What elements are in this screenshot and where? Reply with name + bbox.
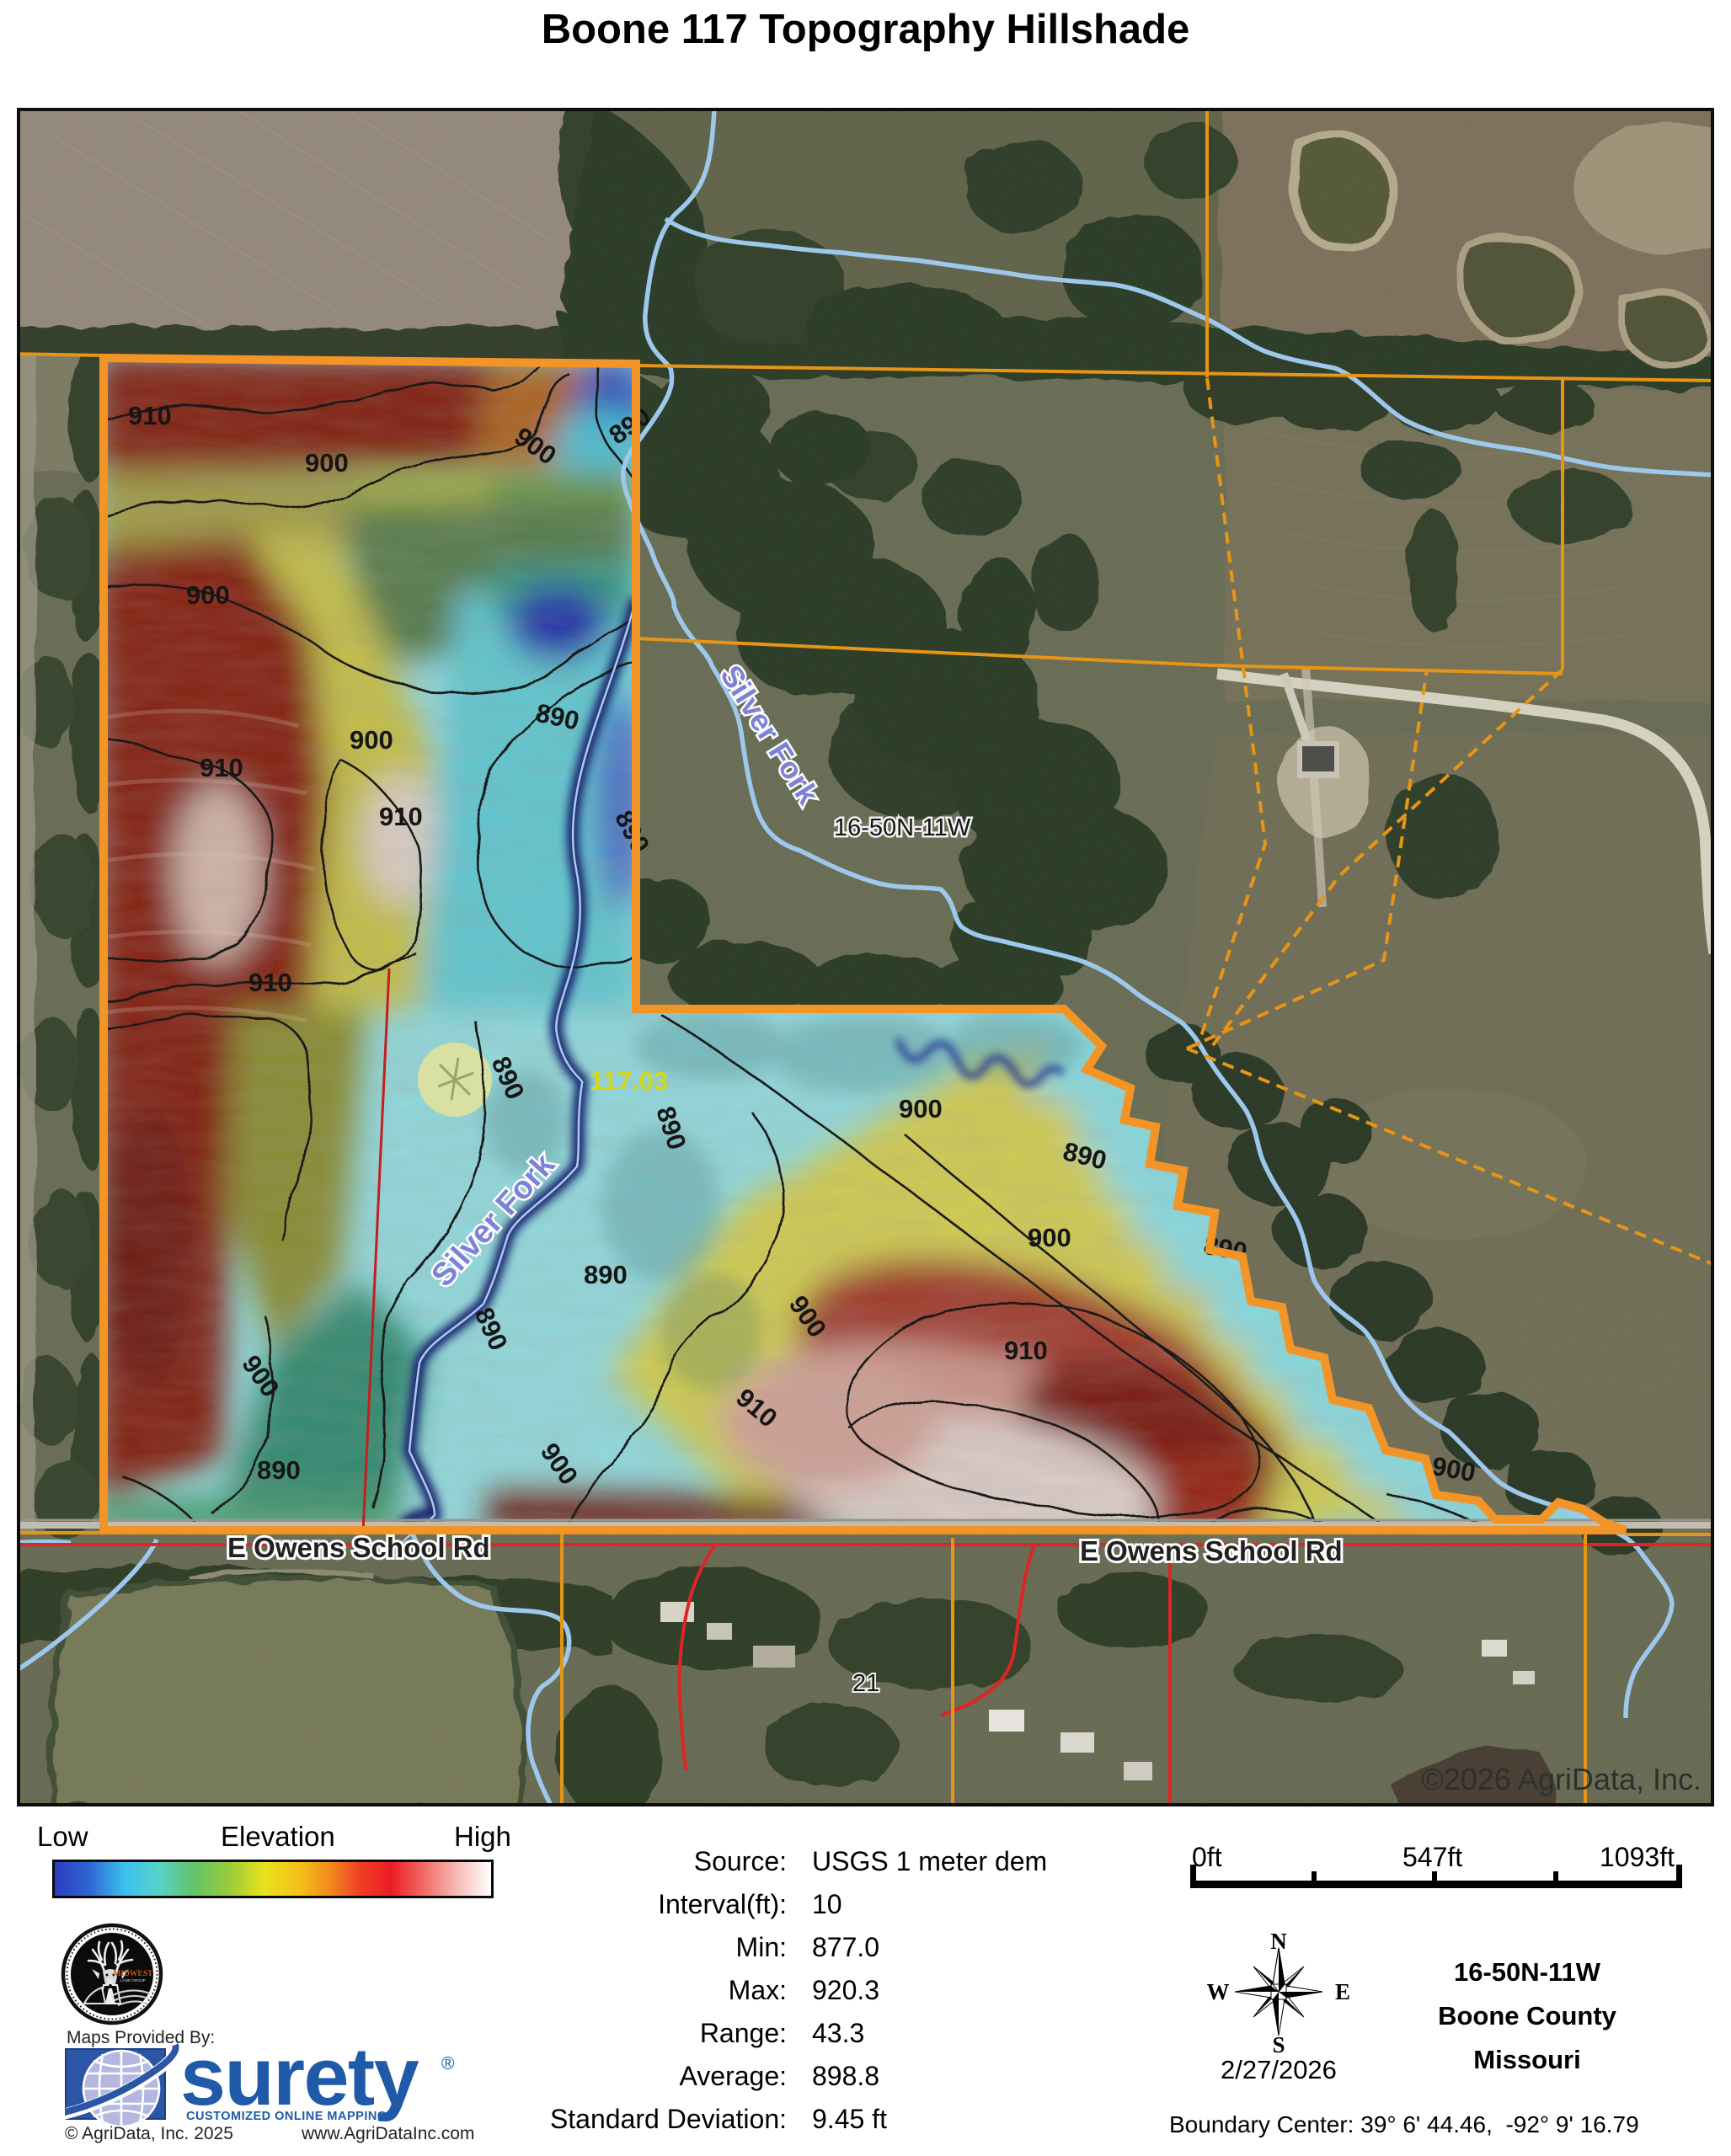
svg-text:MIDWEST: MIDWEST [114, 1970, 154, 1978]
svg-text:N: N [1270, 1929, 1287, 1954]
svg-text:©2026 AgriData, Inc.: ©2026 AgriData, Inc. [1421, 1762, 1702, 1796]
svg-text:S: S [1272, 2032, 1285, 2055]
svg-text:CUSTOMIZED ONLINE MAPPING: CUSTOMIZED ONLINE MAPPING [186, 2110, 387, 2123]
svg-text:W: W [1207, 1979, 1230, 2004]
svg-text:E: E [1335, 1979, 1350, 2004]
svg-text:LAND GROUP: LAND GROUP [120, 1978, 146, 1983]
